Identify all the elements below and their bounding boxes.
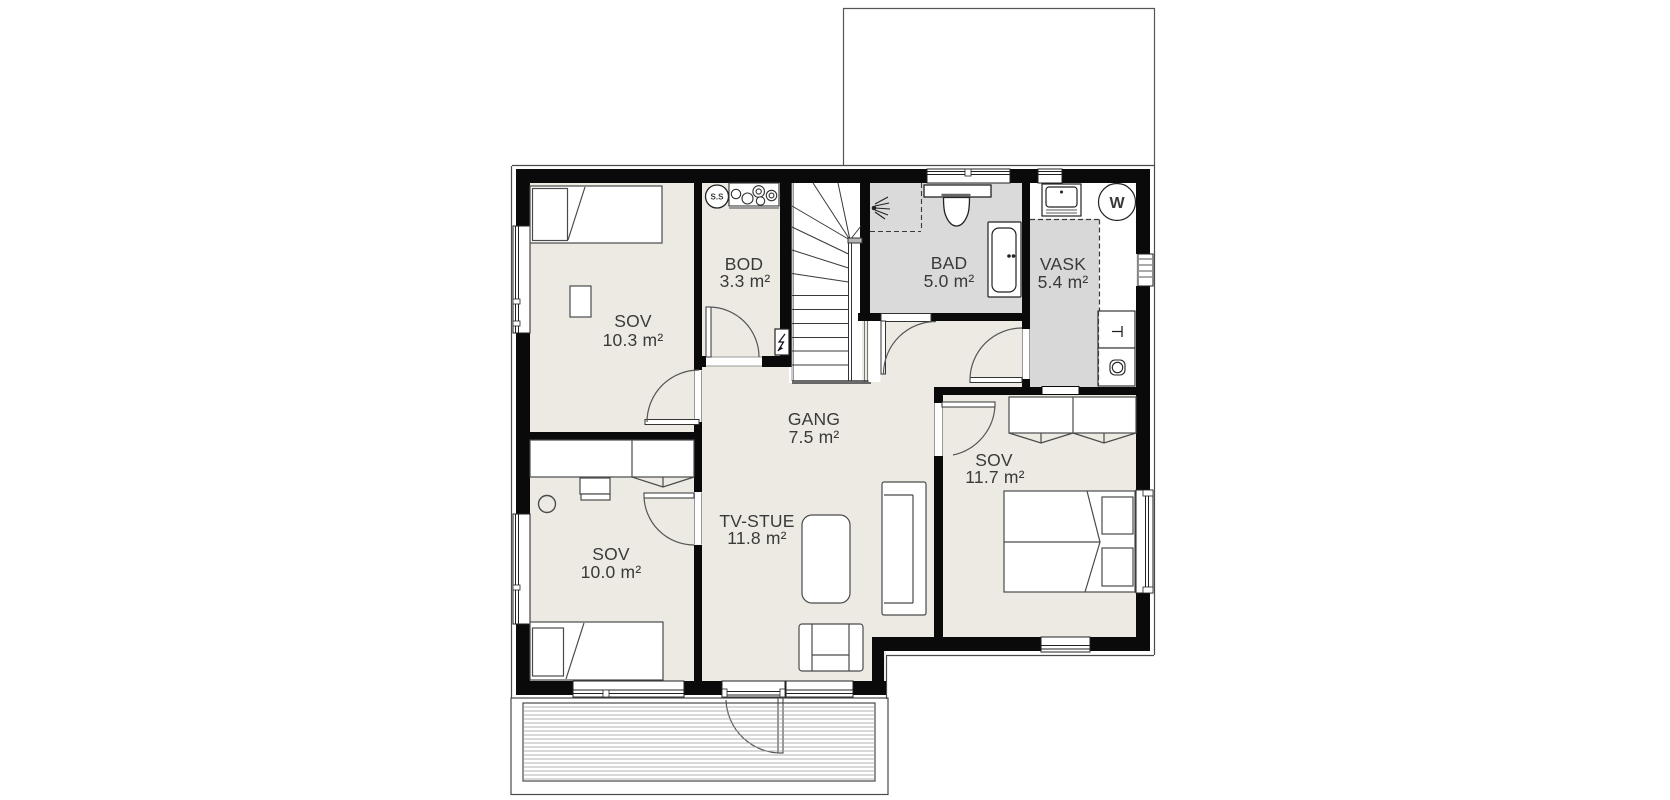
svg-text:11.8 m²: 11.8 m² <box>727 528 786 548</box>
svg-text:S.S: S.S <box>711 193 725 202</box>
svg-text:GANG: GANG <box>788 409 840 429</box>
svg-text:10.0 m²: 10.0 m² <box>581 562 642 582</box>
svg-text:11.7 m²: 11.7 m² <box>965 467 1024 487</box>
svg-text:10.3 m²: 10.3 m² <box>603 330 664 350</box>
svg-text:5.0 m²: 5.0 m² <box>924 271 975 291</box>
svg-text:SOV: SOV <box>614 311 652 331</box>
svg-text:5.4 m²: 5.4 m² <box>1038 272 1089 292</box>
svg-text:3.3 m²: 3.3 m² <box>720 271 771 291</box>
svg-text:SOV: SOV <box>592 544 630 564</box>
svg-text:BAD: BAD <box>931 253 968 273</box>
svg-text:7.5 m²: 7.5 m² <box>789 427 840 447</box>
svg-text:W: W <box>1109 195 1125 212</box>
svg-text:VASK: VASK <box>1040 254 1086 274</box>
